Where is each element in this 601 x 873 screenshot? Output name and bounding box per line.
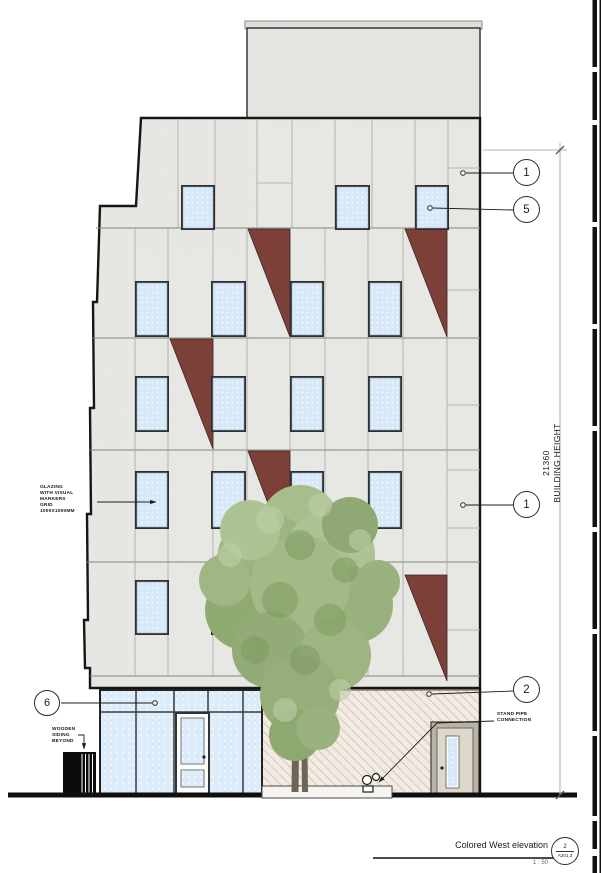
drawing-sheet: GLAZING WITH VISUAL MARKERS GRID 1000X10… <box>0 0 601 873</box>
dimension-value: 21360 <box>541 408 552 518</box>
viewport-badge: 2 A201.3 <box>551 837 579 865</box>
callout-1-mid: 1 <box>513 491 540 518</box>
elevation-drawing <box>0 0 601 873</box>
storefront <box>100 690 262 795</box>
sheet-border <box>592 0 601 873</box>
callout-1-top: 1 <box>513 159 540 186</box>
callout-6: 6 <box>34 690 60 716</box>
side-door <box>431 722 479 795</box>
viewport-detail-number: 2 <box>563 844 566 851</box>
callout-5: 5 <box>513 196 540 223</box>
building-height-dimension: 21360 BUILDING HEIGHT <box>541 408 563 518</box>
view-scale: 1 : 50 <box>448 860 548 866</box>
wooden-siding-note: WOODEN SIDING BEYOND <box>52 727 86 745</box>
glazing-note: GLAZING WITH VISUAL MARKERS GRID 1000X10… <box>40 485 97 515</box>
entrance-door <box>176 713 209 795</box>
view-title: Colored West elevation <box>380 840 548 850</box>
wooden-siding <box>63 752 96 794</box>
standpipe-note: STAND PIPE CONNECTION <box>497 712 551 724</box>
title-block-line <box>373 857 561 859</box>
dimension-label: BUILDING HEIGHT <box>552 408 563 518</box>
callout-2: 2 <box>513 676 540 703</box>
viewport-sheet-number: A201.3 <box>556 851 575 859</box>
